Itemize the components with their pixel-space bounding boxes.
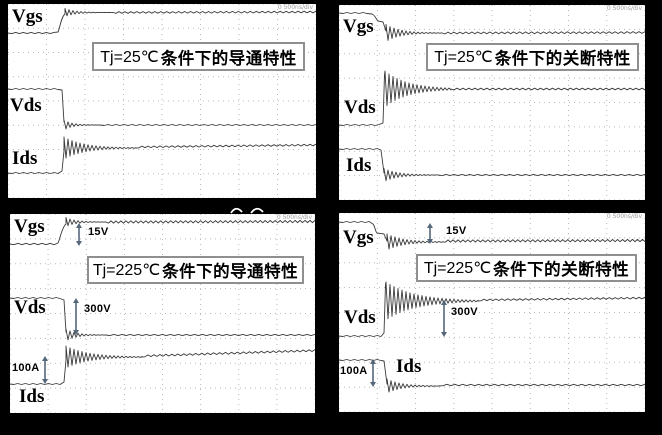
vgs-delta-arrow [76,223,82,246]
waveform-plot [8,4,316,198]
vgs-trace [10,218,315,245]
ids-swing-value: 100A [340,366,368,377]
title-condition: Tj=225℃ [93,260,160,280]
ids-swing-value: 100A [12,363,40,374]
vgs-label: Vgs [343,17,374,36]
title-text: 条件下的关断特性 [493,256,629,280]
vds-swing-value: 300V [84,304,111,315]
ids-trace [8,137,316,174]
traces [8,9,316,174]
vgs-trace [339,222,645,250]
waveform-plot [339,213,645,412]
scope-panel-turn-off-225c: Vgs Vds Ids 15V 300V 100A Tj=225℃条件下的关断特… [339,213,645,412]
ids-trace [10,346,315,385]
ids-delta-arrow [42,356,48,384]
vds-trace [339,71,645,126]
vds-label: Vds [10,96,42,115]
panel-title-box: Tj=25℃条件下的关断特性 [426,43,639,71]
vds-label: Vds [14,298,46,317]
timebase-note: 0 500ns/div [278,5,313,11]
vgs-label: Vgs [343,228,374,247]
timebase-note: 0 500ns/div [607,214,642,220]
scope-panel-turn-on-225c: Vgs Vds Ids 15V 300V 100A Tj=225℃条件下的导通特… [10,214,315,413]
panel-title-box: Tj=225℃条件下的导通特性 [87,256,304,284]
title-text: 条件下的导通特性 [162,258,298,282]
ids-label: Ids [346,156,371,175]
vgs-delta-arrow [427,223,433,244]
vds-label: Vds [344,98,376,117]
vds-delta-arrow [73,298,79,335]
vgs-label: Vgs [14,217,45,236]
waveform-plot [339,5,645,200]
scope-panel-turn-off-25c: Vgs Vds Ids Tj=25℃条件下的关断特性 0 500ns/div [339,5,645,200]
vds-label: Vds [344,308,376,327]
vgs-label: Vgs [12,7,43,26]
vgs-swing-value: 15V [88,227,108,238]
ids-delta-arrow [370,359,376,387]
title-text: 条件下的关断特性 [495,45,631,69]
vds-trace [10,298,315,340]
scope-panel-turn-on-25c: Vgs Vds Ids Tj=25℃条件下的导通特性 0 500ns/div [8,4,316,198]
vgs-trace [339,13,645,41]
vds-delta-arrow [441,300,447,337]
timebase-note: 0 500ns/div [277,215,312,221]
scope-grid [339,5,645,200]
title-condition: Tj=25℃ [100,47,158,67]
panel-title-box: Tj=225℃条件下的关断特性 [416,254,637,282]
ids-label: Ids [19,387,44,406]
ids-label: Ids [396,357,421,376]
ids-label: Ids [12,149,37,168]
vds-swing-value: 300V [451,307,478,318]
scope-grid [8,4,316,198]
four-oscilloscope-figure: Vgs Vds Ids Tj=25℃条件下的导通特性 0 500ns/div V… [0,0,662,435]
traces [339,222,645,393]
title-condition: Tj=225℃ [424,258,491,278]
timebase-note: 0 500ns/div [607,6,642,12]
panel-title-box: Tj=25℃条件下的导通特性 [92,42,305,71]
waveform-plot [10,214,315,413]
title-condition: Tj=25℃ [434,47,492,67]
title-text: 条件下的导通特性 [161,45,297,69]
vgs-swing-value: 15V [446,226,466,237]
caption-remnant [227,204,275,214]
